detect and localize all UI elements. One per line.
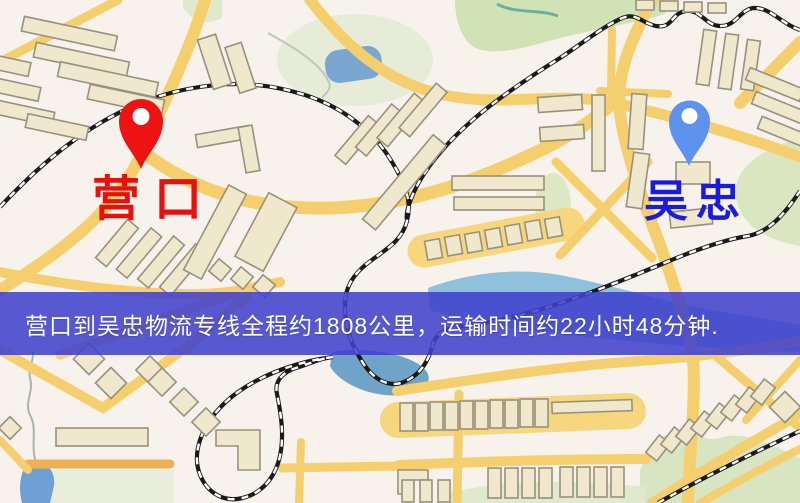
origin-city-label: 营口 xyxy=(92,176,216,224)
destination-pin-hole xyxy=(682,108,698,124)
route-info-text: 营口到吴忠物流专线全程约1808公里，运输时间约22小时48分钟. xyxy=(25,307,719,341)
destination-city-label: 吴忠 xyxy=(644,180,748,224)
logistics-route-map: 营口 吴忠 营口到吴忠物流专线全程约1808公里，运输时间约22小时48分钟. xyxy=(0,0,800,503)
origin-pin-hole xyxy=(133,108,150,125)
route-info-banner: 营口到吴忠物流专线全程约1808公里，运输时间约22小时48分钟. xyxy=(0,292,800,355)
map-image xyxy=(0,0,800,503)
